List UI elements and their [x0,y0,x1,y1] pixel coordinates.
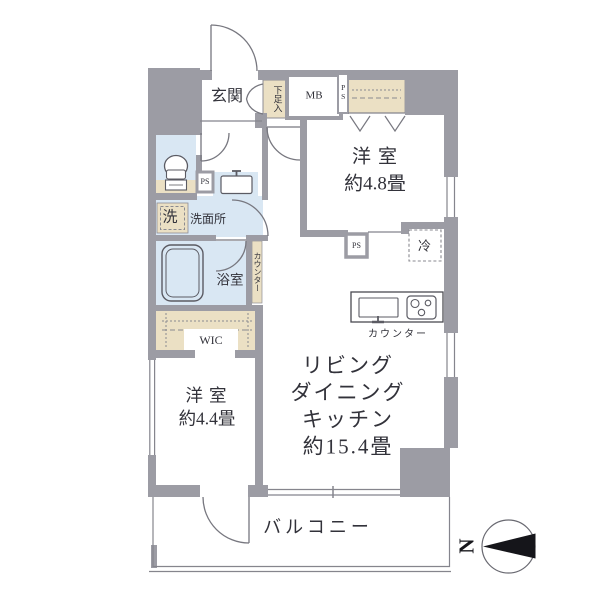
floor-plan-page: 玄関 下足入 MB PS 洋室 約4.8畳 PS 洗 洗面所 浴室 カウンター … [0,0,600,600]
window-left [150,360,155,455]
entrance-door-arc [211,25,257,71]
floor-plan-drawing [0,0,600,600]
room1-name-label: 洋室 [352,148,404,167]
toilet-door-arc [201,133,229,161]
window-right-upper [447,177,455,217]
pipe-space-ldk-label: PS [352,242,361,250]
shoe-storage-label: 下足入 [273,86,282,113]
window-right-lower [447,333,455,377]
ldk-label: リビング ダイニング キッチン 約15.4畳 [291,352,406,460]
hall-ldk-door-arc [267,127,300,160]
laundry-label: 洗 [162,211,177,226]
room2-name-label: 洋室 [186,387,233,405]
ldk-size: 約15.4畳 [303,433,394,460]
balcony-door-arc [203,497,249,543]
ldk-line3: キッチン [302,406,394,433]
side-counter-label: カウンター [253,252,261,292]
ldk-line1: リビング [302,352,394,379]
compass-icon [482,520,536,573]
wic-label: WIC [199,334,222,346]
washroom-label: 洗面所 [190,213,226,225]
compass-north-label: N [457,538,478,553]
pipe-space-hall-label: PS [201,178,210,186]
balcony-label: バルコニー [263,518,373,536]
bathroom-label: 浴室 [217,273,244,287]
genkan-label: 玄関 [211,89,243,105]
toilet-icon [165,156,188,191]
refrigerator-label: 冷 [418,239,431,252]
closet-hanger-icons [350,116,405,131]
ldk-line2: ダイニング [291,379,406,406]
kitchen-counter-label: カウンター [368,330,428,340]
meter-box-label: MB [305,91,322,102]
pipe-space-top-label: PS [339,83,347,101]
shoe-cabinet-doors [247,84,264,114]
room1-size-label: 約4.8畳 [344,175,406,194]
balcony-sliding-window [268,490,400,496]
closet [348,76,405,113]
kitchen-unit [351,292,443,322]
room2-size-label: 約4.4畳 [179,410,236,428]
